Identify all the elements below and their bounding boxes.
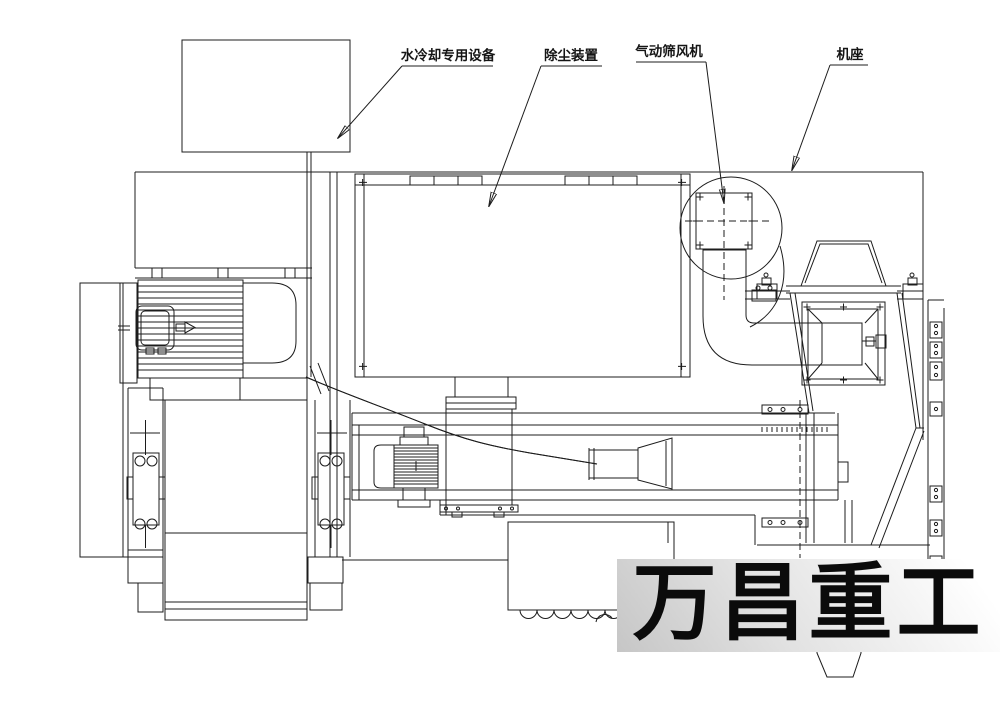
main-motor bbox=[118, 280, 307, 400]
discharge-outlet bbox=[817, 649, 861, 677]
callouts: 水冷却专用设备 除尘装置 气动筛风机 机座 bbox=[338, 43, 868, 206]
dust-collector bbox=[355, 174, 690, 409]
pneumatic-sieve-fan bbox=[680, 177, 784, 327]
callout-water-cooling-label: 水冷却专用设备 bbox=[401, 47, 496, 63]
mill-housing bbox=[165, 400, 307, 620]
cad-drawing-page: 水冷却专用设备 除尘装置 气动筛风机 机座 万昌重工 bbox=[0, 0, 1000, 707]
spring-assembly-right bbox=[312, 400, 350, 557]
machine-frame bbox=[80, 172, 923, 612]
callout-machine-base-label: 机座 bbox=[837, 46, 865, 62]
water-cooling-unit bbox=[182, 40, 350, 152]
watermark-text: 万昌重工 bbox=[617, 553, 1000, 653]
bell-mouth bbox=[589, 438, 672, 489]
callout-sieve-fan-label: 气动筛风机 bbox=[634, 43, 703, 59]
discharge-stand bbox=[762, 241, 924, 548]
right-guide-panel bbox=[928, 300, 944, 590]
spring-assembly-left bbox=[127, 388, 165, 557]
auxiliary-motor bbox=[374, 427, 438, 507]
coolant-pipe bbox=[307, 152, 311, 377]
callout-dust-collector-label: 除尘装置 bbox=[544, 47, 598, 63]
fan-duct bbox=[703, 250, 886, 379]
